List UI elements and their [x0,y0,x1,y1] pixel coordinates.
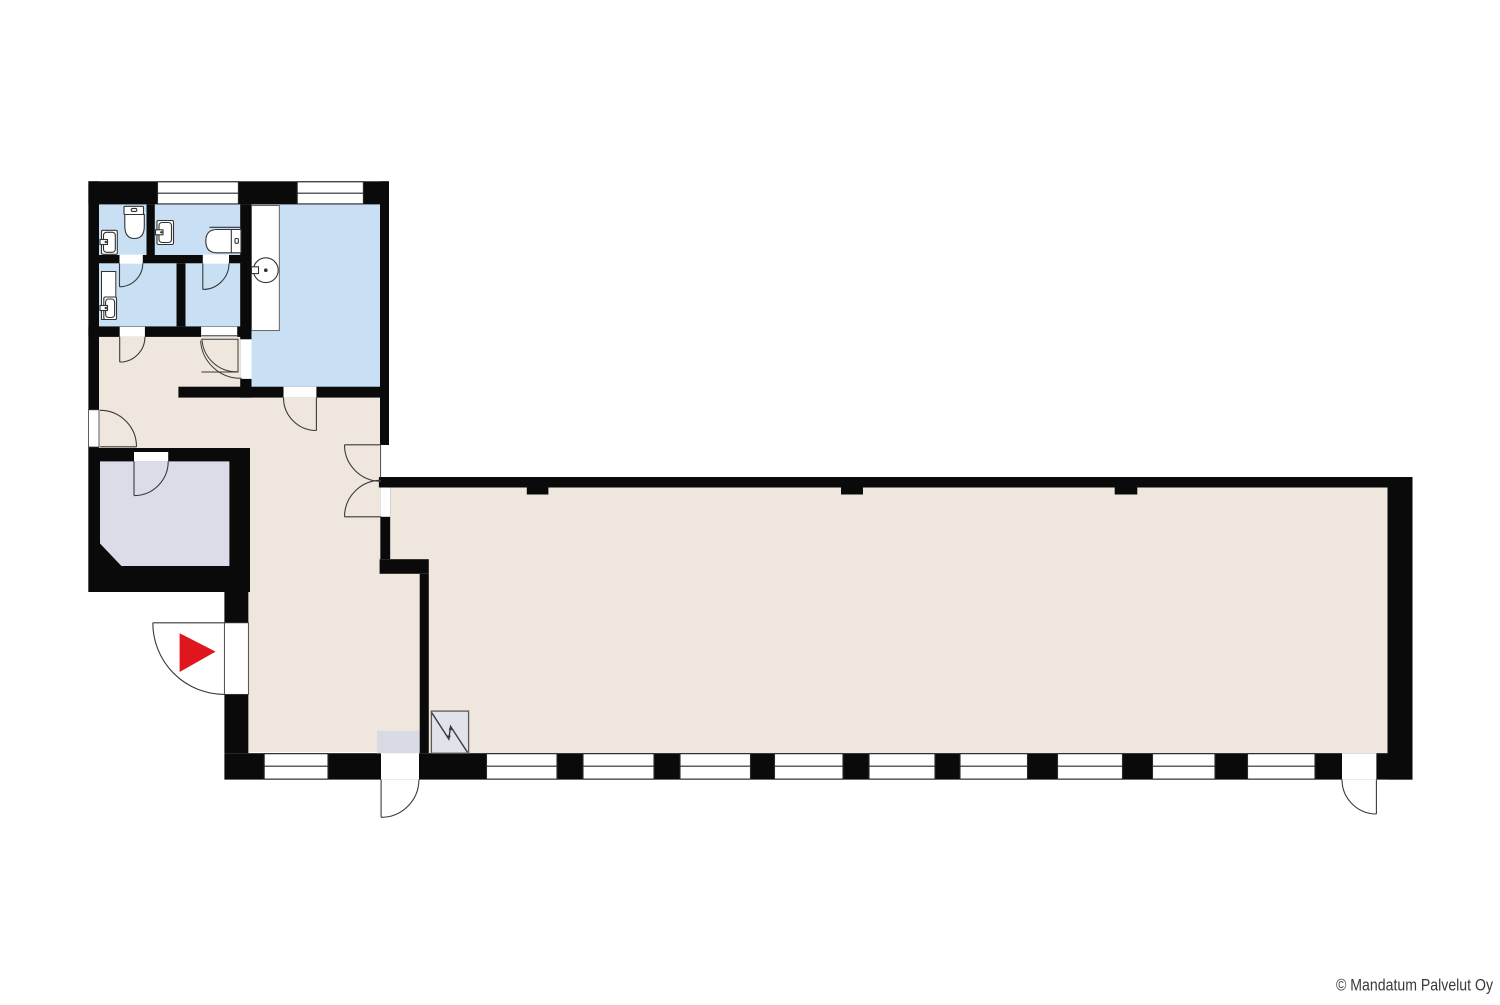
svg-text:© Mandatum Palvelut Oy: © Mandatum Palvelut Oy [1336,976,1493,995]
